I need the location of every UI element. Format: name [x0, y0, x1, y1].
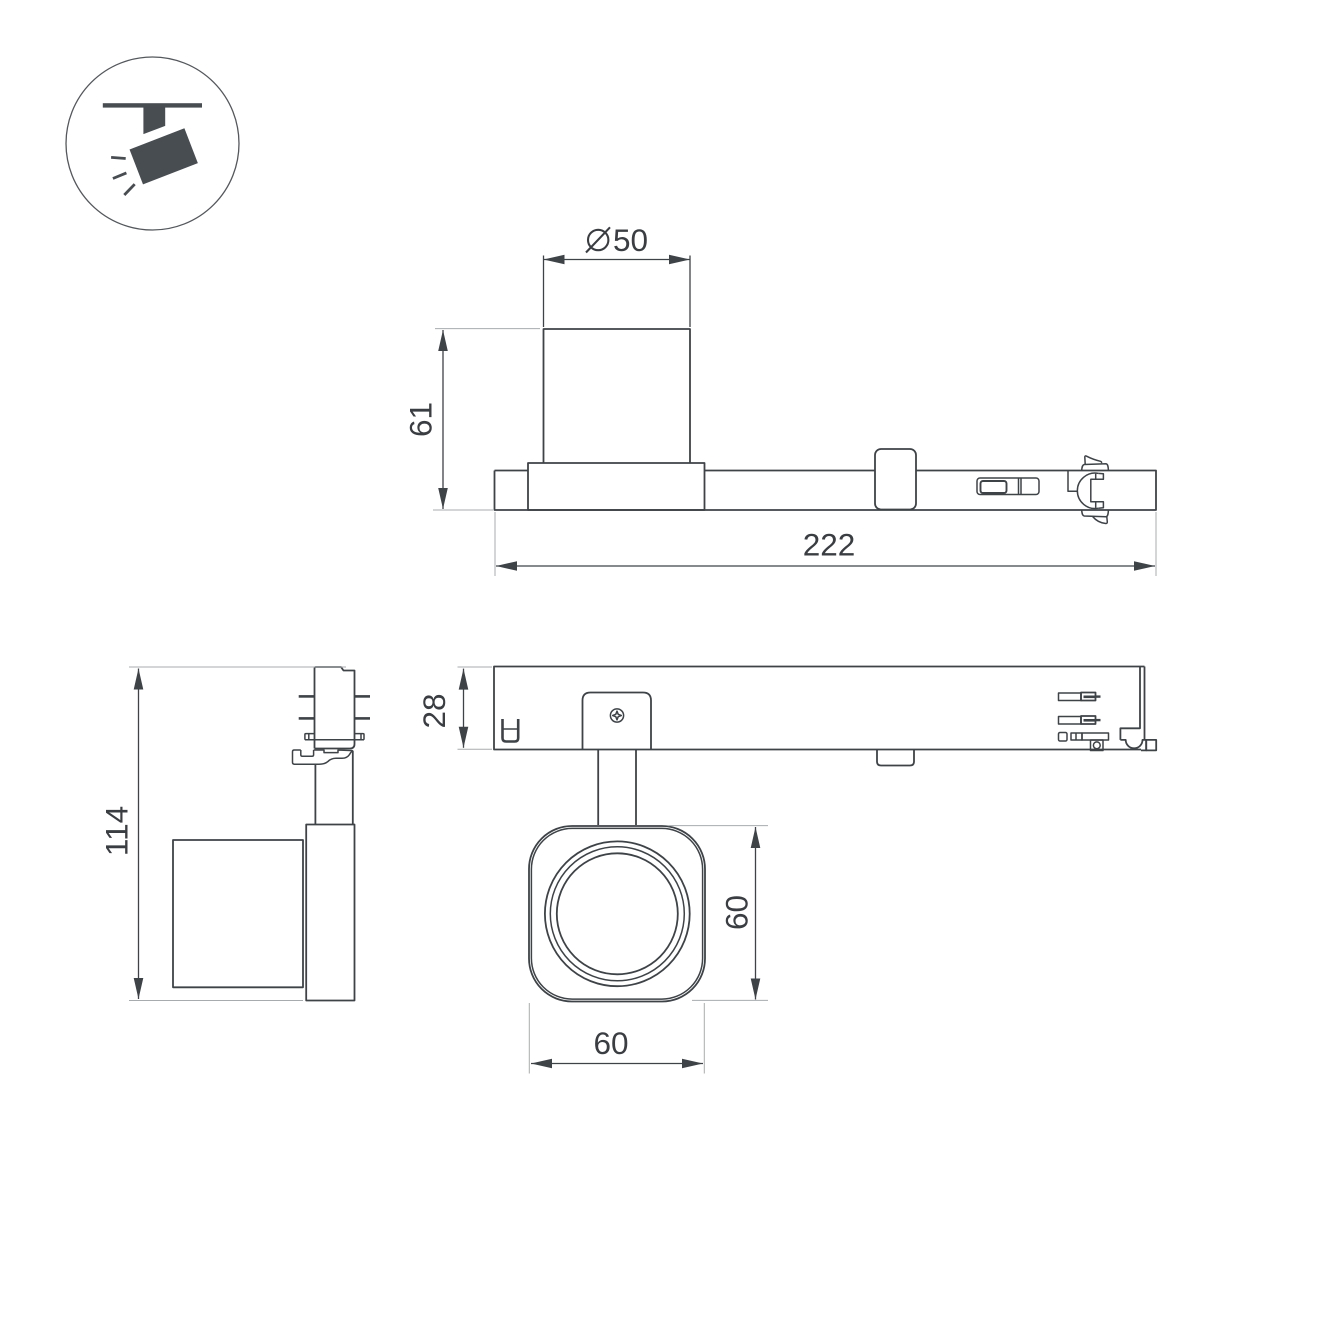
svg-text:28: 28 — [416, 693, 452, 728]
svg-text:222: 222 — [803, 527, 856, 563]
svg-text:61: 61 — [403, 402, 439, 437]
svg-text:60: 60 — [719, 895, 755, 930]
svg-text:114: 114 — [99, 806, 135, 856]
svg-text:50: 50 — [613, 222, 648, 258]
svg-text:60: 60 — [593, 1025, 628, 1061]
